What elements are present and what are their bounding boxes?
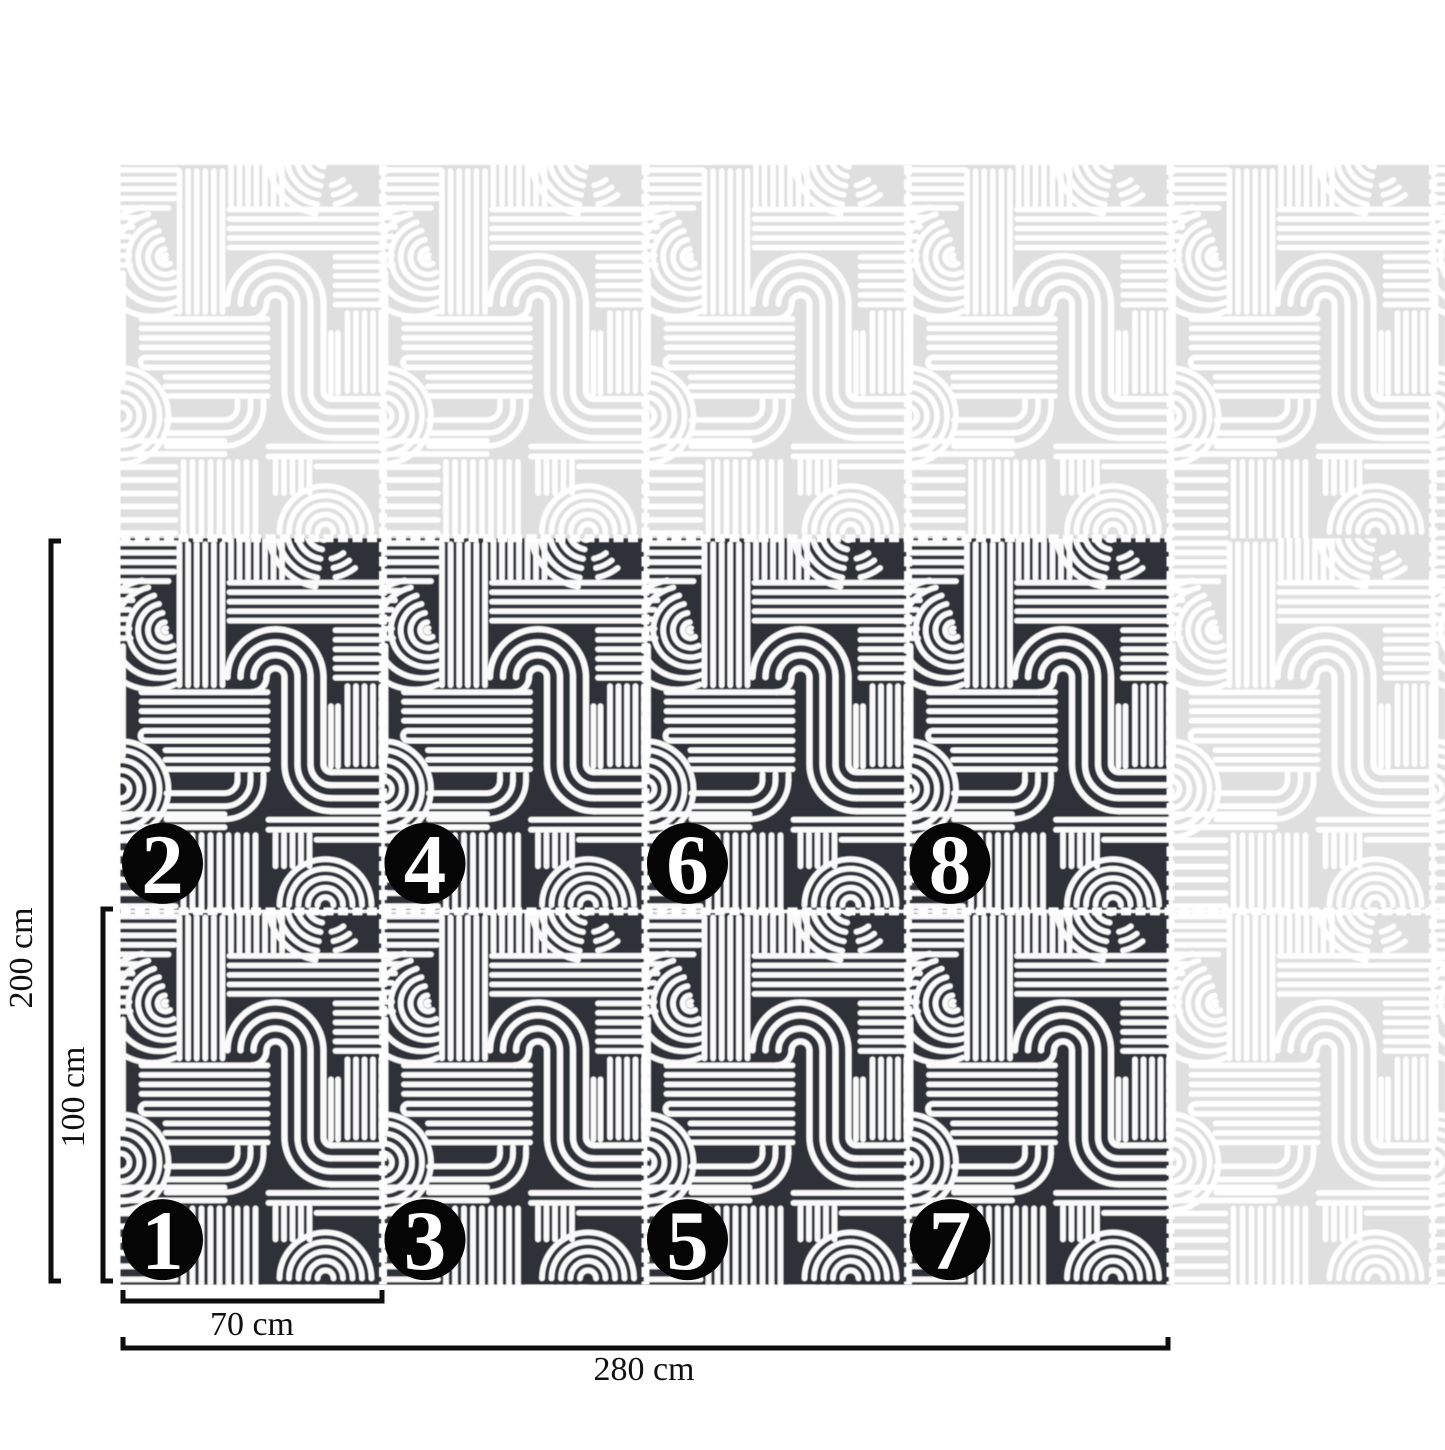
svg-text:70 cm: 70 cm [210, 1306, 294, 1343]
svg-text:4: 4 [404, 818, 447, 912]
svg-text:5: 5 [666, 1194, 709, 1288]
svg-text:3: 3 [404, 1194, 447, 1288]
svg-text:2: 2 [141, 818, 184, 912]
svg-text:200 cm: 200 cm [3, 907, 40, 1008]
svg-text:280 cm: 280 cm [593, 1351, 694, 1388]
svg-text:8: 8 [929, 818, 972, 912]
svg-text:6: 6 [666, 818, 709, 912]
svg-text:100 cm: 100 cm [55, 1046, 92, 1147]
svg-text:7: 7 [929, 1194, 972, 1288]
svg-text:1: 1 [141, 1194, 184, 1288]
